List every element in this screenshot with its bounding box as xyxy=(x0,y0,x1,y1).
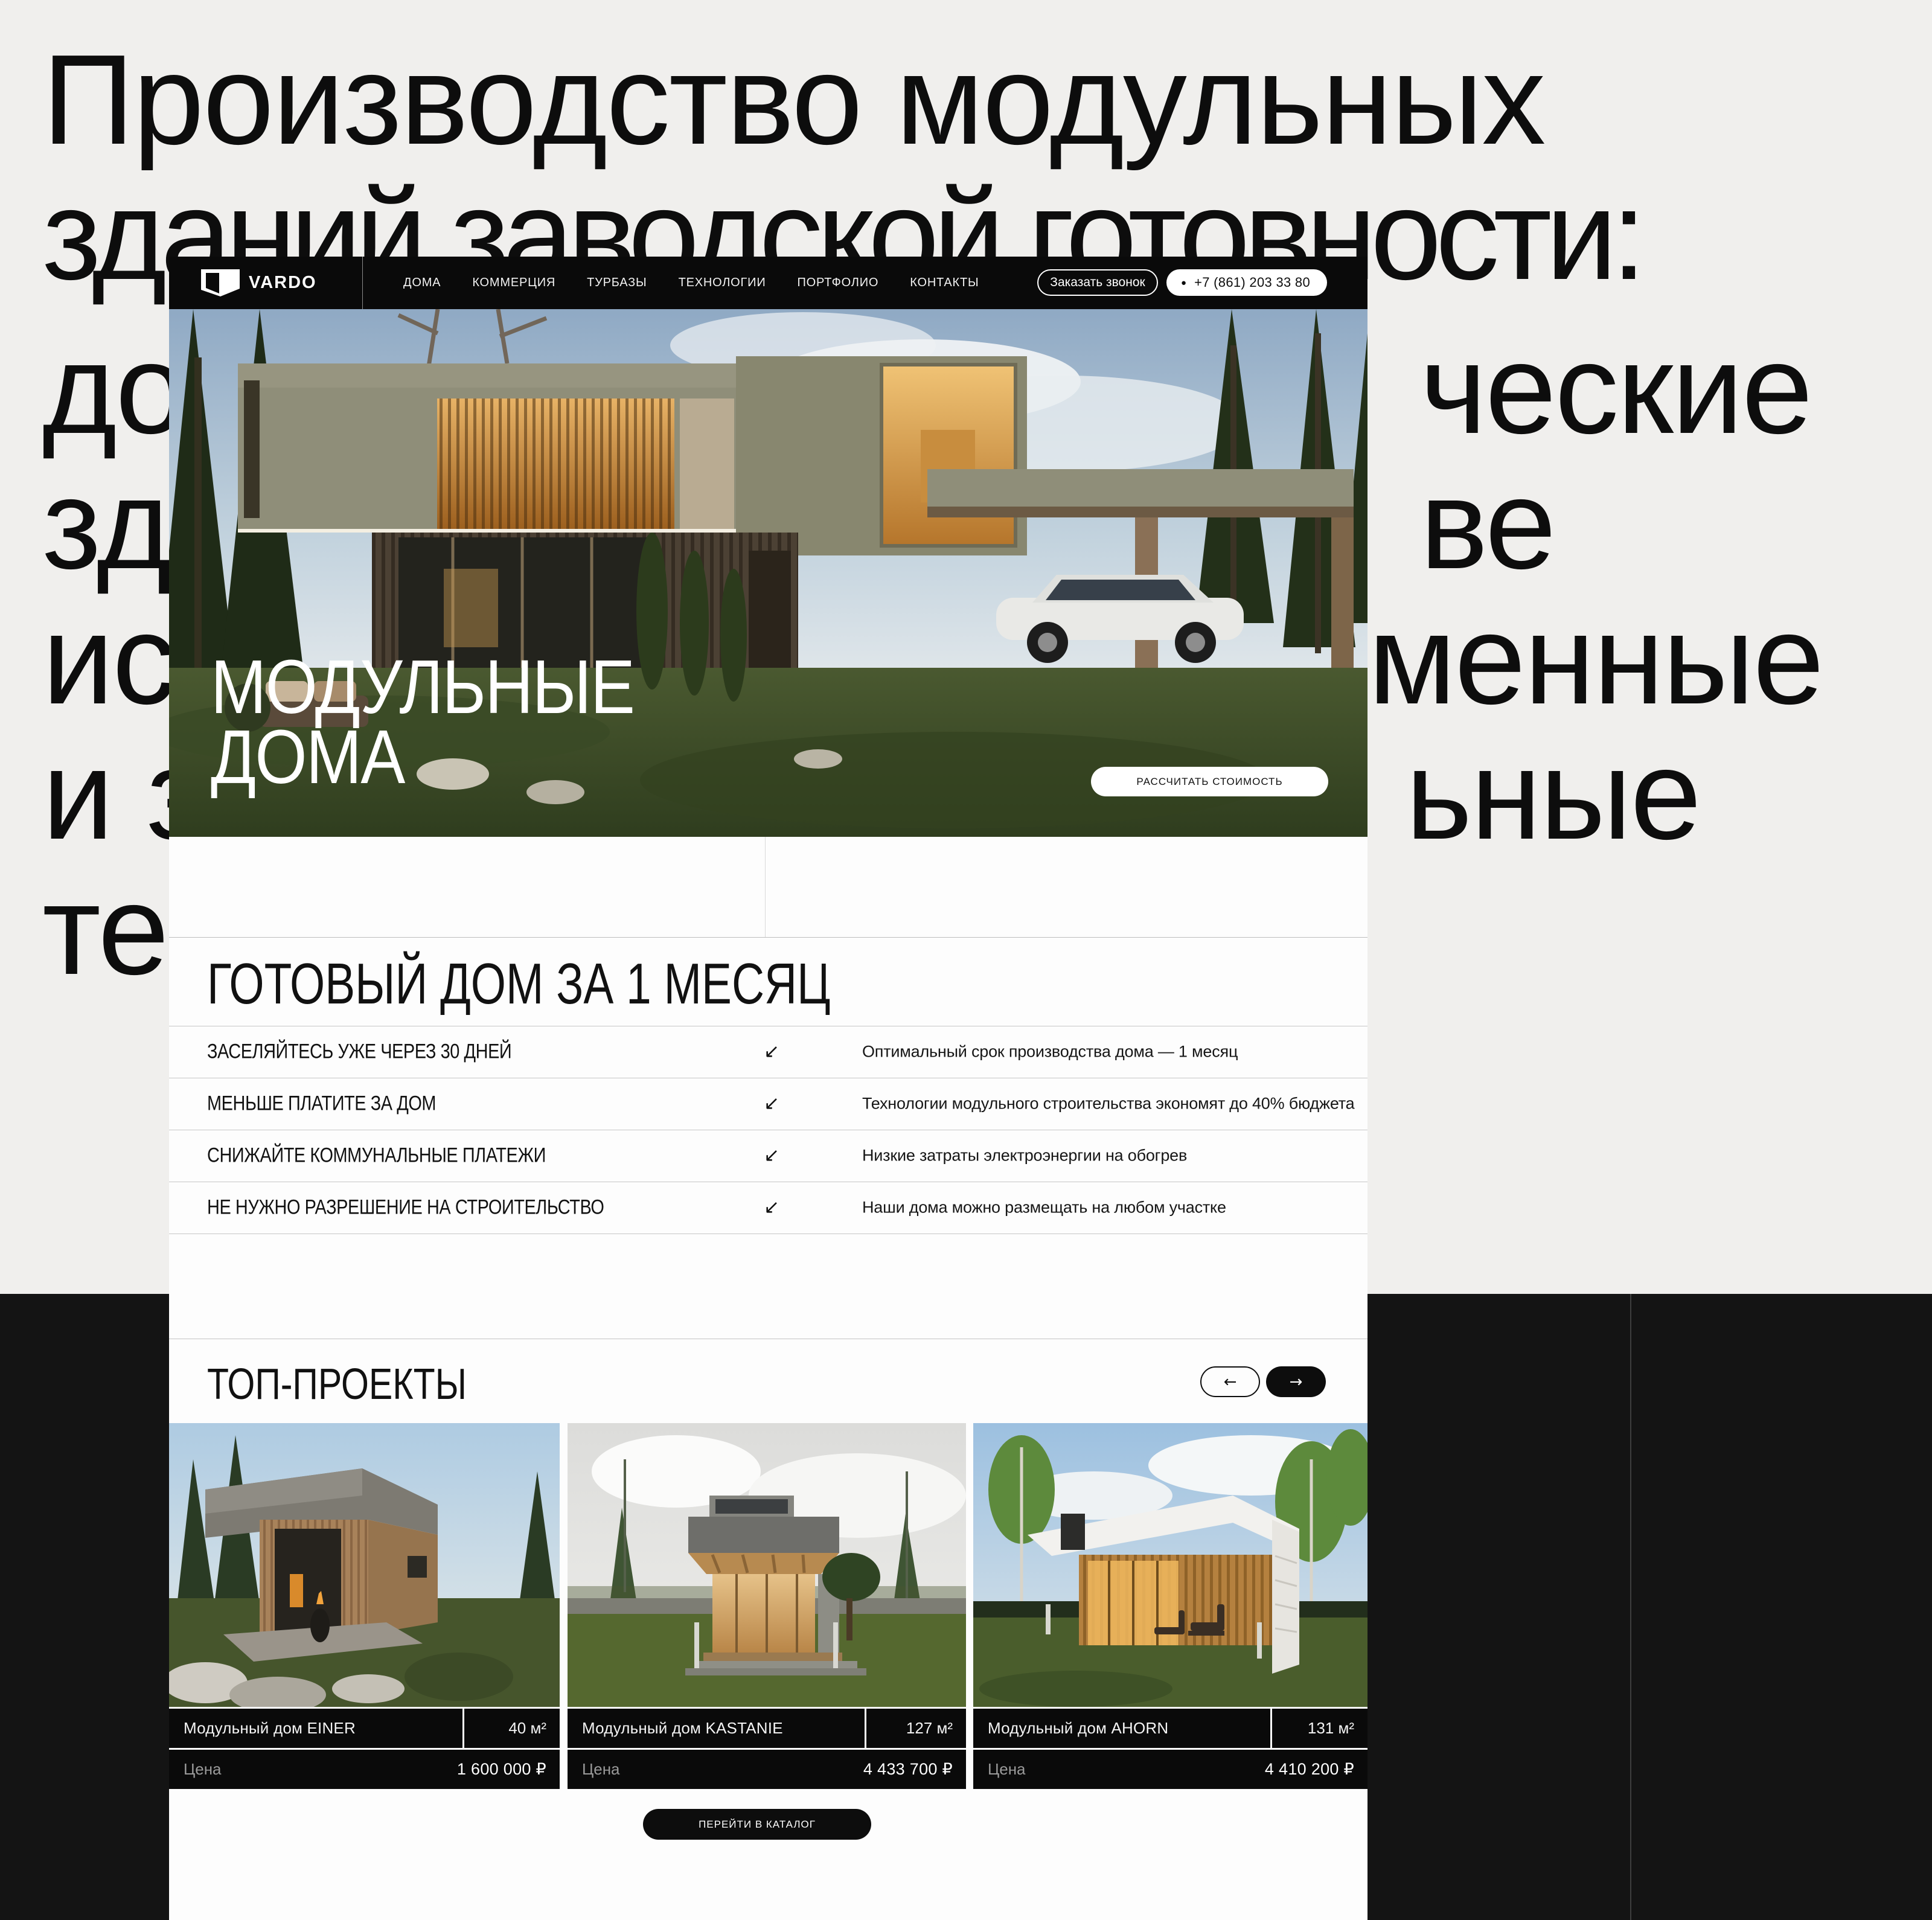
nav-divider xyxy=(362,257,363,309)
phone-number: +7 (861) 203 33 80 xyxy=(1194,275,1310,290)
benefit-description: Технологии модульного строительства экон… xyxy=(862,1095,1354,1113)
display-text-line-1: Производство модульных xyxy=(42,36,1544,164)
projects-heading: ТОП-ПРОЕКТЫ xyxy=(207,1360,467,1409)
nav-item-kommerciya[interactable]: КОММЕРЦИЯ xyxy=(472,276,555,290)
price-value: 4 433 700 ₽ xyxy=(863,1760,953,1779)
hero-section: МОДУЛЬНЫЕ ДОМА РАССЧИТАТЬ СТОИМОСТЬ xyxy=(169,309,1367,837)
display-fragment-left: те xyxy=(42,858,168,1001)
display-fragment-right: ческие xyxy=(1420,325,1811,453)
display-text-line-3: до ческие xyxy=(42,325,185,453)
card-title-row: Модульный дом KASTANIE 127 м² xyxy=(568,1709,966,1748)
benefit-row: СНИЖАЙТЕ КОММУНАЛЬНЫЕ ПЛАТЕЖИ ↙ Низкие з… xyxy=(169,1130,1367,1182)
display-fragment-left: ис xyxy=(42,587,174,731)
benefit-label: МЕНЬШЕ ПЛАТИТЕ ЗА ДОМ xyxy=(207,1092,436,1116)
benefit-description: Оптимальный срок производства дома — 1 м… xyxy=(862,1043,1238,1061)
benefits-heading: ГОТОВЫЙ ДОМ ЗА 1 МЕСЯЦ xyxy=(207,951,830,1017)
project-area: 40 м² xyxy=(462,1709,560,1748)
project-image xyxy=(568,1423,966,1707)
arrow-down-left-icon: ↙ xyxy=(764,1196,779,1218)
project-card-kastanie[interactable]: Модульный дом KASTANIE 127 м² Цена 4 433… xyxy=(568,1423,966,1789)
nav-item-doma[interactable]: ДОМА xyxy=(403,276,441,290)
arrow-right-icon: → xyxy=(1290,1373,1303,1391)
display-fragment-left: до xyxy=(42,317,185,460)
benefit-row: НЕ НУЖНО РАЗРЕШЕНИЕ НА СТРОИТЕЛЬСТВО ↙ Н… xyxy=(169,1182,1367,1234)
card-title-row: Модульный дом AHORN 131 м² xyxy=(973,1709,1367,1748)
benefit-row: ЗАСЕЛЯЙТЕСЬ УЖЕ ЧЕРЕЗ 30 ДНЕЙ ↙ Оптималь… xyxy=(169,1026,1367,1078)
page-seam-line xyxy=(1630,1294,1631,1920)
card-title-row: Модульный дом EINER 40 м² xyxy=(169,1709,560,1748)
go-to-catalog-button[interactable]: ПЕРЕЙТИ В КАТАЛОГ xyxy=(643,1809,871,1840)
phone-button[interactable]: ● +7 (861) 203 33 80 xyxy=(1166,269,1327,296)
price-label: Цена xyxy=(988,1760,1026,1779)
website-frame: VARDO ДОМА КОММЕРЦИЯ ТУРБАЗЫ ТЕХНОЛОГИИ … xyxy=(169,257,1367,1920)
price-label: Цена xyxy=(184,1760,222,1779)
benefit-label: ЗАСЕЛЯЙТЕСЬ УЖЕ ЧЕРЕЗ 30 ДНЕЙ xyxy=(207,1040,511,1064)
table-rule xyxy=(169,1234,1367,1234)
nav-item-turbazy[interactable]: ТУРБАЗЫ xyxy=(587,276,647,290)
price-label: Цена xyxy=(582,1760,620,1779)
project-name: Модульный дом EINER xyxy=(169,1709,462,1748)
nav-item-portfolio[interactable]: ПОРТФОЛИО xyxy=(798,276,879,290)
nav-item-tehnologii[interactable]: ТЕХНОЛОГИИ xyxy=(679,276,766,290)
nav-menu: ДОМА КОММЕРЦИЯ ТУРБАЗЫ ТЕХНОЛОГИИ ПОРТФО… xyxy=(403,257,979,309)
arrow-left-icon: ← xyxy=(1224,1373,1237,1391)
benefit-row: МЕНЬШЕ ПЛАТИТЕ ЗА ДОМ ↙ Технологии модул… xyxy=(169,1078,1367,1130)
card-price-row: Цена 4 433 700 ₽ xyxy=(568,1750,966,1789)
project-name: Модульный дом AHORN xyxy=(973,1709,1270,1748)
display-fragment-right: менные xyxy=(1368,595,1823,723)
section-rule xyxy=(169,1339,1367,1339)
hero-title-line-2: ДОМА xyxy=(211,722,634,792)
display-text-line-4: зд ве xyxy=(42,460,170,588)
arrow-down-left-icon: ↙ xyxy=(764,1040,779,1062)
benefit-label: СНИЖАЙТЕ КОММУНАЛЬНЫЕ ПЛАТЕЖИ xyxy=(207,1144,546,1168)
hero-title: МОДУЛЬНЫЕ ДОМА xyxy=(211,652,634,792)
vardo-logo-icon xyxy=(200,269,240,297)
project-image xyxy=(169,1423,560,1707)
arrow-down-left-icon: ↙ xyxy=(764,1092,779,1114)
band-divider xyxy=(765,837,766,937)
status-dot-icon: ● xyxy=(1181,278,1186,287)
calculate-cost-button[interactable]: РАССЧИТАТЬ СТОИМОСТЬ xyxy=(1091,767,1328,796)
slider-prev-button[interactable]: ← xyxy=(1200,1366,1260,1397)
nav-item-kontakty[interactable]: КОНТАКТЫ xyxy=(910,276,979,290)
display-text-line-7: те xyxy=(42,866,168,994)
benefit-description: Низкие затраты электроэнергии на обогрев xyxy=(862,1147,1187,1165)
display-fragment-right: ве xyxy=(1420,460,1555,588)
project-area: 131 м² xyxy=(1270,1709,1367,1748)
top-navigation: VARDO ДОМА КОММЕРЦИЯ ТУРБАЗЫ ТЕХНОЛОГИИ … xyxy=(169,257,1367,309)
project-name: Модульный дом KASTANIE xyxy=(568,1709,865,1748)
split-band xyxy=(169,837,1367,938)
project-card-ahorn[interactable]: Модульный дом AHORN 131 м² Цена 4 410 20… xyxy=(973,1423,1367,1789)
arrow-down-left-icon: ↙ xyxy=(764,1144,779,1166)
logo[interactable]: VARDO xyxy=(200,269,339,297)
card-price-row: Цена 1 600 000 ₽ xyxy=(169,1750,560,1789)
display-text-line-5: ис менные xyxy=(42,595,174,723)
request-call-button[interactable]: Заказать звонок xyxy=(1037,269,1158,296)
price-value: 4 410 200 ₽ xyxy=(1265,1760,1354,1779)
display-fragment-right: ьные xyxy=(1406,731,1700,859)
benefit-label: НЕ НУЖНО РАЗРЕШЕНИЕ НА СТРОИТЕЛЬСТВО xyxy=(207,1196,604,1220)
project-area: 127 м² xyxy=(865,1709,966,1748)
slider-next-button[interactable]: → xyxy=(1266,1366,1326,1397)
display-fragment-left: зд xyxy=(42,452,170,595)
project-image xyxy=(973,1423,1367,1707)
project-card-einer[interactable]: Модульный дом EINER 40 м² Цена 1 600 000… xyxy=(169,1423,560,1789)
benefit-description: Наши дома можно размещать на любом участ… xyxy=(862,1198,1226,1217)
brand-name: VARDO xyxy=(249,273,317,293)
hero-title-line-1: МОДУЛЬНЫЕ xyxy=(211,652,634,722)
price-value: 1 600 000 ₽ xyxy=(457,1760,546,1779)
card-price-row: Цена 4 410 200 ₽ xyxy=(973,1750,1367,1789)
